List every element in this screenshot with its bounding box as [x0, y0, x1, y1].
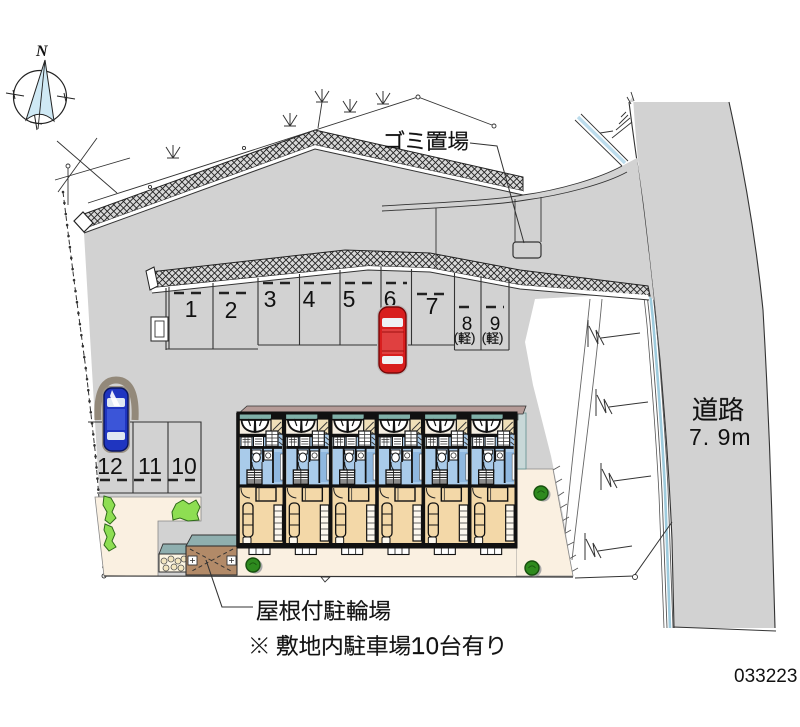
svg-text:8: 8 [462, 314, 473, 335]
svg-text:11: 11 [138, 453, 162, 479]
svg-text:1: 1 [185, 296, 198, 322]
svg-text:7. 9m: 7. 9m [689, 424, 752, 450]
svg-text:12: 12 [97, 453, 123, 479]
svg-text:033223: 033223 [734, 666, 797, 687]
svg-text:5: 5 [343, 286, 356, 312]
svg-text:10: 10 [171, 453, 197, 479]
svg-text:3: 3 [264, 286, 277, 312]
svg-text:9: 9 [490, 314, 501, 335]
svg-text:4: 4 [303, 286, 316, 312]
svg-text:7: 7 [426, 293, 439, 319]
svg-text:2: 2 [225, 297, 238, 323]
svg-text:N: N [35, 43, 49, 60]
